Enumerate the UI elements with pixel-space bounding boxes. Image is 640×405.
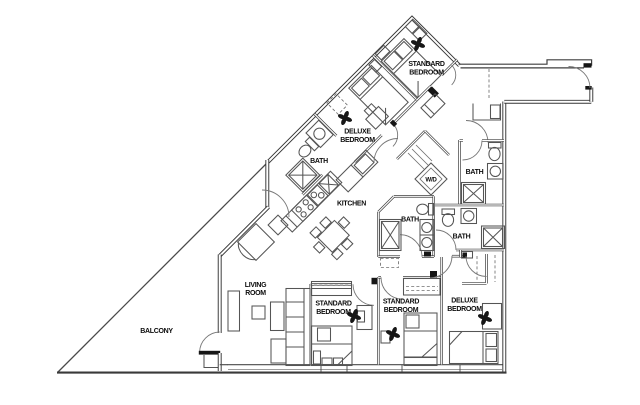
svg-text:BALCONY: BALCONY [140, 328, 173, 335]
svg-text:LIVING: LIVING [245, 282, 267, 289]
svg-text:DELUXE: DELUXE [451, 298, 478, 305]
svg-text:BEDROOM: BEDROOM [447, 306, 482, 313]
svg-text:ROOM: ROOM [245, 290, 266, 297]
svg-text:DELUXE: DELUXE [344, 129, 371, 136]
svg-text:STANDARD: STANDARD [315, 301, 352, 308]
svg-text:BEDROOM: BEDROOM [384, 307, 419, 314]
svg-text:W/D: W/D [425, 177, 437, 184]
svg-text:BEDROOM: BEDROOM [340, 137, 375, 144]
svg-text:STANDARD: STANDARD [383, 299, 420, 306]
svg-text:BATH: BATH [466, 169, 484, 176]
svg-text:BATH: BATH [310, 158, 328, 165]
svg-text:BEDROOM: BEDROOM [316, 309, 351, 316]
svg-text:BEDROOM: BEDROOM [409, 70, 444, 77]
svg-text:KITCHEN: KITCHEN [337, 201, 366, 208]
svg-text:STANDARD: STANDARD [408, 61, 445, 68]
svg-text:BATH: BATH [401, 217, 419, 224]
svg-text:BATH: BATH [453, 234, 471, 241]
